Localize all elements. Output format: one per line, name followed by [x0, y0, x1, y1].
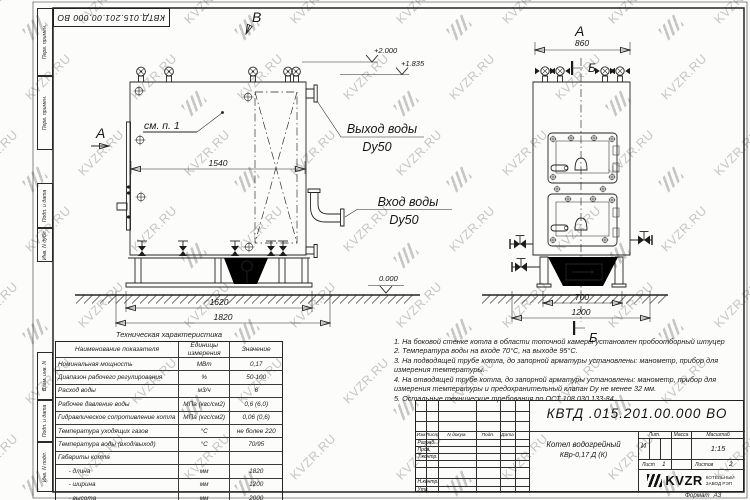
tech-table-header-row: Наименование показателя Единицы измерени… — [56, 342, 282, 357]
row-units: °С — [178, 425, 230, 437]
row-units: °С — [178, 438, 230, 450]
row-name: Номинальная мощность — [56, 358, 178, 370]
row-units: % — [178, 371, 230, 383]
row-value: 0,6 (6,0) — [229, 398, 282, 410]
company-name: КОТЕЛЬНЫЙ ЗАВОД РЭП — [706, 475, 735, 486]
note-item: 3. На подводящей трубе котла, до запорно… — [394, 356, 744, 375]
doc-number: КВТД .015.201.00.000 ВО — [529, 406, 745, 421]
col-header-units: Единицы измерения — [178, 342, 230, 357]
note-item: 4. На отводящей трубе котла, до запорной… — [394, 375, 744, 394]
note-item: 2. Температура воды на входе 70°С, на вы… — [394, 346, 744, 355]
row-value: 2000 — [229, 492, 282, 500]
table-row: Температура воды (вход/выход)°С70/95 — [56, 437, 282, 450]
format-label: Формат — [685, 492, 710, 499]
note-item: 1. На боковой стенке котла в области топ… — [394, 337, 744, 346]
scale-header: Масштаб — [691, 432, 745, 438]
title-block: КВТД .015.201.00.000 ВО Изм Лист N докум… — [415, 400, 744, 492]
col-list: Лист — [426, 433, 438, 438]
tech-characteristics: Техническая характеристика Наименование … — [55, 330, 283, 500]
company-name-line1: КОТЕЛЬНЫЙ — [706, 475, 735, 481]
row-units: МПа (кгс/см2) — [178, 398, 230, 410]
row-units: МВт — [178, 358, 230, 370]
table-row: Температура уходящих газов°Сне более 220 — [56, 424, 282, 437]
row-units: МПа (кгс/см2) — [178, 412, 230, 424]
col-header-name: Наименование показателя — [56, 342, 178, 357]
frame-column-label: Подп. и дата — [42, 189, 48, 221]
row-name: Рабочее давление воды — [56, 398, 178, 410]
table-row: Габариты котла — [56, 451, 282, 464]
row-value: не более 220 — [229, 425, 282, 437]
row-units: мм — [178, 465, 230, 477]
lit-header: Лит. — [638, 432, 671, 438]
corner-stamp-number: КВТД.015.201.00.000 ВО — [57, 13, 165, 23]
company-name-line2: ЗАВОД РЭП — [706, 481, 735, 487]
frame-column-label: Инв. N подл. — [42, 452, 48, 482]
col-podp: Подп. — [476, 433, 500, 438]
row-units: мм — [178, 492, 230, 500]
row-value: 50-100 — [229, 371, 282, 383]
lit-value: И — [638, 443, 649, 450]
row-tkontr: Т.контр. — [418, 454, 438, 460]
row-value: 1200 — [229, 479, 282, 491]
row-value: 70/95 — [229, 438, 282, 450]
frame-column-box: Подп. и дата — [37, 400, 53, 442]
frame-column-label: Инв. N дубл. — [42, 230, 48, 260]
row-value: 0,17 — [229, 358, 282, 370]
row-name: Температура уходящих газов — [56, 425, 178, 437]
table-row: Расход водым3/ч6 — [56, 384, 282, 397]
tech-table: Наименование показателя Единицы измерени… — [55, 341, 283, 500]
table-row: - высотамм2000 — [56, 491, 282, 500]
frame-column-label: Перв. примен. — [42, 96, 48, 130]
col-izm: Изм — [416, 433, 426, 438]
tech-table-title: Техническая характеристика — [55, 330, 283, 339]
col-header-value: Значение — [229, 342, 282, 357]
frame-column-label: Взам. инв. N — [42, 361, 48, 391]
frame-column-label: Перв. примен. — [42, 25, 48, 59]
row-razrab: Разраб. — [418, 440, 436, 446]
row-units — [178, 452, 230, 464]
row-prov: Пров. — [418, 447, 431, 453]
row-name: - длина — [56, 465, 178, 477]
row-value: 6 — [229, 385, 282, 397]
row-units: м3/ч — [178, 385, 230, 397]
frame-column-box: Подп. и дата — [37, 183, 53, 228]
row-value — [229, 452, 282, 464]
row-name: - ширина — [56, 479, 178, 491]
col-docnum: N докум. — [438, 433, 476, 438]
frame-column-box: Инв. N подл. — [37, 442, 53, 492]
product-name-line2: КВр-0,17 Д (К) — [529, 450, 638, 459]
frame-column-box: Перв. примен. — [37, 76, 53, 150]
row-name: Расход воды — [56, 385, 178, 397]
kvzr-logo-text: KVZR — [665, 473, 702, 488]
sheet-label: Лист — [642, 462, 655, 468]
table-row: Диапазон рабочего регулирования%50-100 — [56, 370, 282, 383]
table-row: Номинальная мощностьМВт0,17 — [56, 357, 282, 370]
scale-value: 1:15 — [691, 444, 745, 453]
format-value: А3 — [714, 492, 722, 499]
frame-column-box: Инв. N дубл. — [37, 228, 53, 262]
row-units: мм — [178, 479, 230, 491]
sheet-value: 1 — [662, 461, 666, 468]
drawing-page: KVZR.RUKVZR.RUKVZR.RUKVZR.RUKVZR.RUKVZR.… — [0, 0, 750, 500]
row-name: Гидравлическое сопротивление котла — [56, 412, 178, 424]
frame-column-label: Подп. и дата — [42, 405, 48, 437]
table-row: Рабочее давление водыМПа (кгс/см2)0,6 (6… — [56, 397, 282, 410]
row-value: 1820 — [229, 465, 282, 477]
frame-column-box: Перв. примен. — [37, 8, 53, 76]
row-nkontr: Н.контр. — [418, 479, 439, 485]
row-name: Габариты котла — [56, 452, 178, 464]
row-name: - высота — [56, 492, 178, 500]
table-row: - ширинамм1200 — [56, 478, 282, 491]
table-row: Гидравлическое сопротивление котлаМПа (к… — [56, 411, 282, 424]
format-note: ФорматА3 — [685, 492, 725, 499]
company-logo-cell: KVZR КОТЕЛЬНЫЙ ЗАВОД РЭП — [638, 469, 744, 492]
row-value: 0,06 (0,6) — [229, 412, 282, 424]
sheets-label: Листов — [695, 462, 713, 468]
kvzr-stripes-icon — [647, 474, 662, 487]
table-row: - длинамм1820 — [56, 464, 282, 477]
product-name-line1: Котел водогрейный — [529, 440, 638, 449]
technical-notes: 1. На боковой стенке котла в области топ… — [394, 337, 744, 403]
frame-column-box: Взам. инв. N — [37, 352, 53, 400]
corner-stamp: КВТД.015.201.00.000 ВО — [53, 8, 170, 27]
sheets-value: 2 — [729, 461, 733, 468]
row-name: Диапазон рабочего регулирования — [56, 371, 178, 383]
row-name: Температура воды (вход/выход) — [56, 438, 178, 450]
mass-header: Масса — [671, 432, 691, 438]
col-data: Дата — [500, 433, 515, 438]
row-utv: Утв. — [418, 487, 429, 493]
